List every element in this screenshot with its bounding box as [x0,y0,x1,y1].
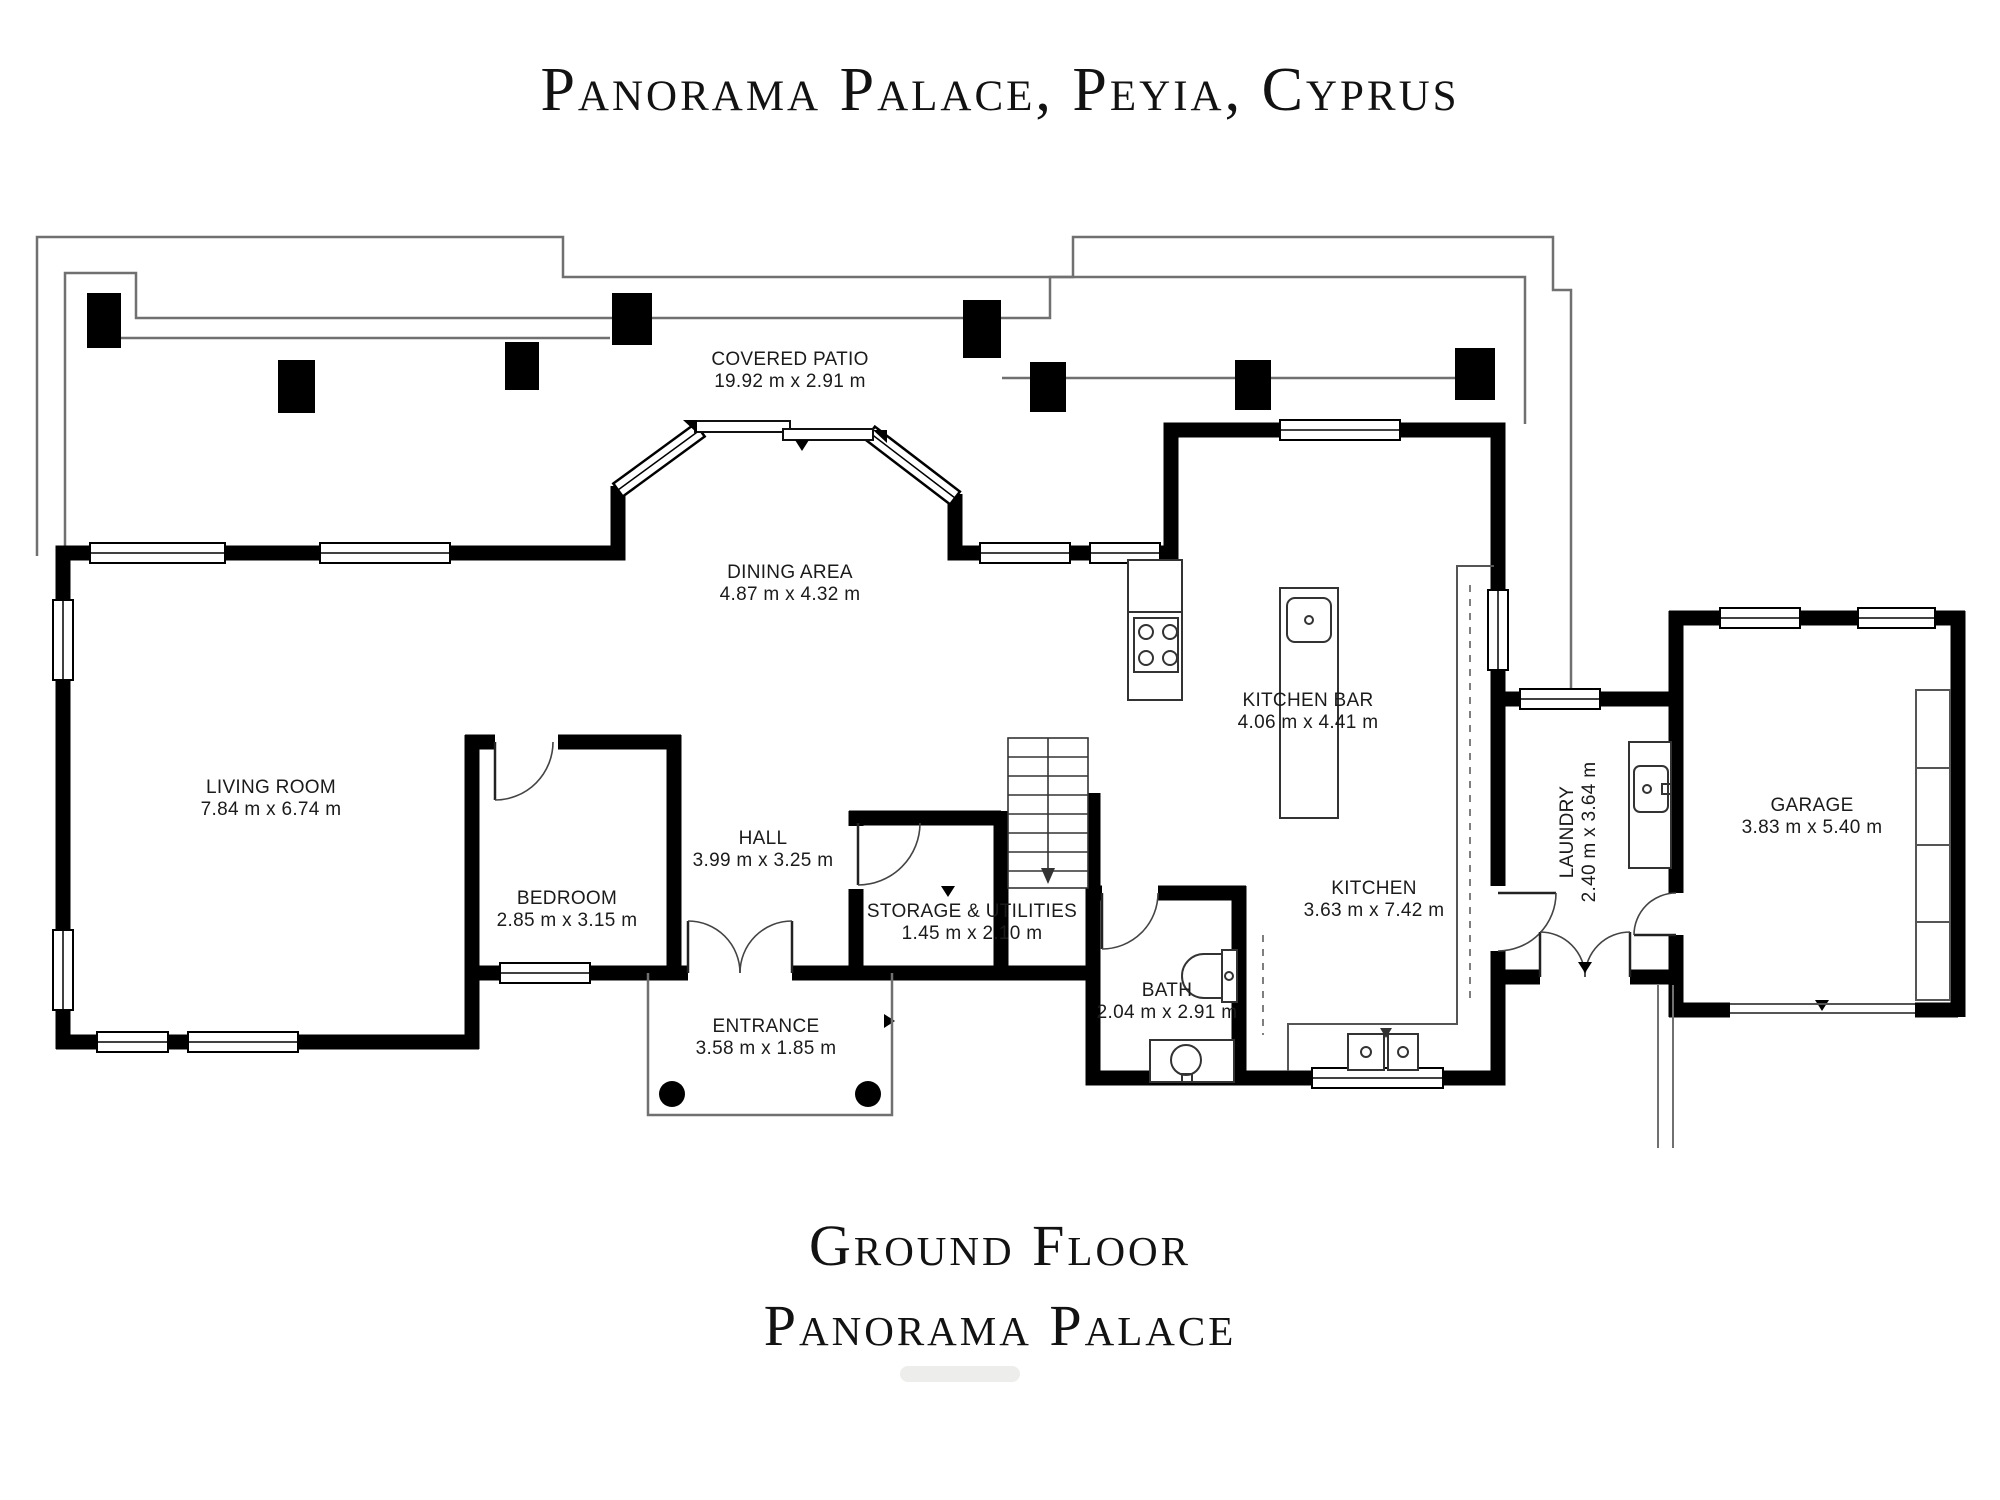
window [500,963,590,983]
room-label-kitchen: KITCHEN 3.63 m x 7.42 m [1304,878,1445,922]
bedroom-door [495,742,553,800]
patio-outline-inner [65,273,1525,556]
door-swing-tick [1815,1000,1829,1011]
window [1858,608,1935,628]
laundry-garage-door [1634,893,1676,935]
footer-title: Ground Floor Panorama Palace [0,1206,2000,1366]
room-dims: 2.04 m x 2.91 m [1097,1002,1238,1024]
kitchen-laundry-door [1498,893,1556,951]
door-swing-tick [1578,962,1592,973]
room-name: STORAGE & UTILITIES [867,901,1077,923]
room-label-entrance: ENTRANCE 3.58 m x 1.85 m [696,1016,837,1060]
room-dims: 1.45 m x 2.10 m [867,923,1077,945]
window [1488,590,1508,670]
room-dims: 3.63 m x 7.42 m [1304,900,1445,922]
room-name: LIVING ROOM [201,777,342,799]
kitchen-sink [1348,1028,1418,1070]
window [320,543,450,563]
room-dims: 7.84 m x 6.74 m [201,799,342,821]
window [980,543,1070,563]
door-swing-tick [884,1014,895,1028]
room-label-storage: STORAGE & UTILITIES 1.45 m x 2.10 m [867,901,1077,945]
dining-bay [613,420,960,504]
room-label-dining-area: DINING AREA 4.87 m x 4.32 m [720,562,861,606]
room-dims: 2.85 m x 3.15 m [497,910,638,932]
patio-roof-outlines [37,237,1571,697]
footer-line-1: Ground Floor [0,1206,2000,1286]
staircase [1008,738,1088,888]
room-dims: 19.92 m x 2.91 m [711,371,868,393]
window [97,1032,168,1052]
pillar [1030,362,1066,412]
room-label-covered-patio: COVERED PATIO 19.92 m x 2.91 m [711,349,868,393]
footer-line-2: Panorama Palace [0,1286,2000,1366]
room-name: ENTRANCE [696,1016,837,1038]
room-name: GARAGE [1742,795,1883,817]
sliding-door-rail [695,421,790,432]
porch-column [855,1081,881,1107]
bath-sink [1150,1040,1234,1082]
pillar [1235,360,1271,410]
pillar [278,360,315,413]
laundry-fixtures [1629,742,1671,868]
room-label-bedroom: BEDROOM 2.85 m x 3.15 m [497,888,638,932]
room-label-laundry: LAUNDRY 2.40 m x 3.64 m [1557,762,1601,903]
window [90,543,225,563]
floor-plan-page: Panorama Palace, Peyia, Cyprus [0,0,2000,1500]
room-label-hall: HALL 3.99 m x 3.25 m [693,828,834,872]
patio-outline-outer [37,237,1571,697]
room-name: HALL [693,828,834,850]
pillar [1455,348,1495,400]
room-label-living-room: LIVING ROOM 7.84 m x 6.74 m [201,777,342,821]
room-name: LAUNDRY [1557,762,1579,903]
sliding-door-rail [783,429,873,440]
room-name: COVERED PATIO [711,349,868,371]
bar-sink [1287,598,1331,642]
room-label-kitchen-bar: KITCHEN BAR 4.06 m x 4.41 m [1238,690,1379,734]
room-dims: 3.58 m x 1.85 m [696,1038,837,1060]
room-dims: 3.83 m x 5.40 m [1742,817,1883,839]
window [188,1032,298,1052]
room-label-bath: BATH 2.04 m x 2.91 m [1097,980,1238,1024]
room-dims: 4.06 m x 4.41 m [1238,712,1379,734]
watermark [900,1366,1020,1382]
room-name: BEDROOM [497,888,638,910]
room-name: DINING AREA [720,562,861,584]
room-label-garage: GARAGE 3.83 m x 5.40 m [1742,795,1883,839]
garage-fixtures [1730,690,1950,1013]
window [1280,420,1400,440]
window [1720,608,1800,628]
room-name: KITCHEN BAR [1238,690,1379,712]
porch-column [659,1081,685,1107]
window [53,600,73,680]
room-dims: 4.87 m x 4.32 m [720,584,861,606]
door-swing-tick [795,440,809,451]
wall-kitchen-south-bathwest [1093,793,1498,1078]
bay-window-right-mullion [870,433,955,498]
bay-window-left-mullion [618,430,700,490]
storage-door [858,823,920,885]
pillar [87,293,121,348]
room-dims: 3.99 m x 3.25 m [693,850,834,872]
room-name: BATH [1097,980,1238,1002]
door-swing-tick [941,886,955,897]
window [1520,689,1600,709]
laundry-counter [1629,742,1671,868]
pillar [612,293,652,345]
room-dims: 2.40 m x 3.64 m [1579,762,1601,903]
kitchen-bar-counter [1128,560,1182,700]
hall-french-doors [688,921,792,973]
pillar [963,300,1001,358]
pillar [505,342,539,390]
room-name: KITCHEN [1304,878,1445,900]
bath-door [1102,893,1158,949]
window [53,930,73,1010]
